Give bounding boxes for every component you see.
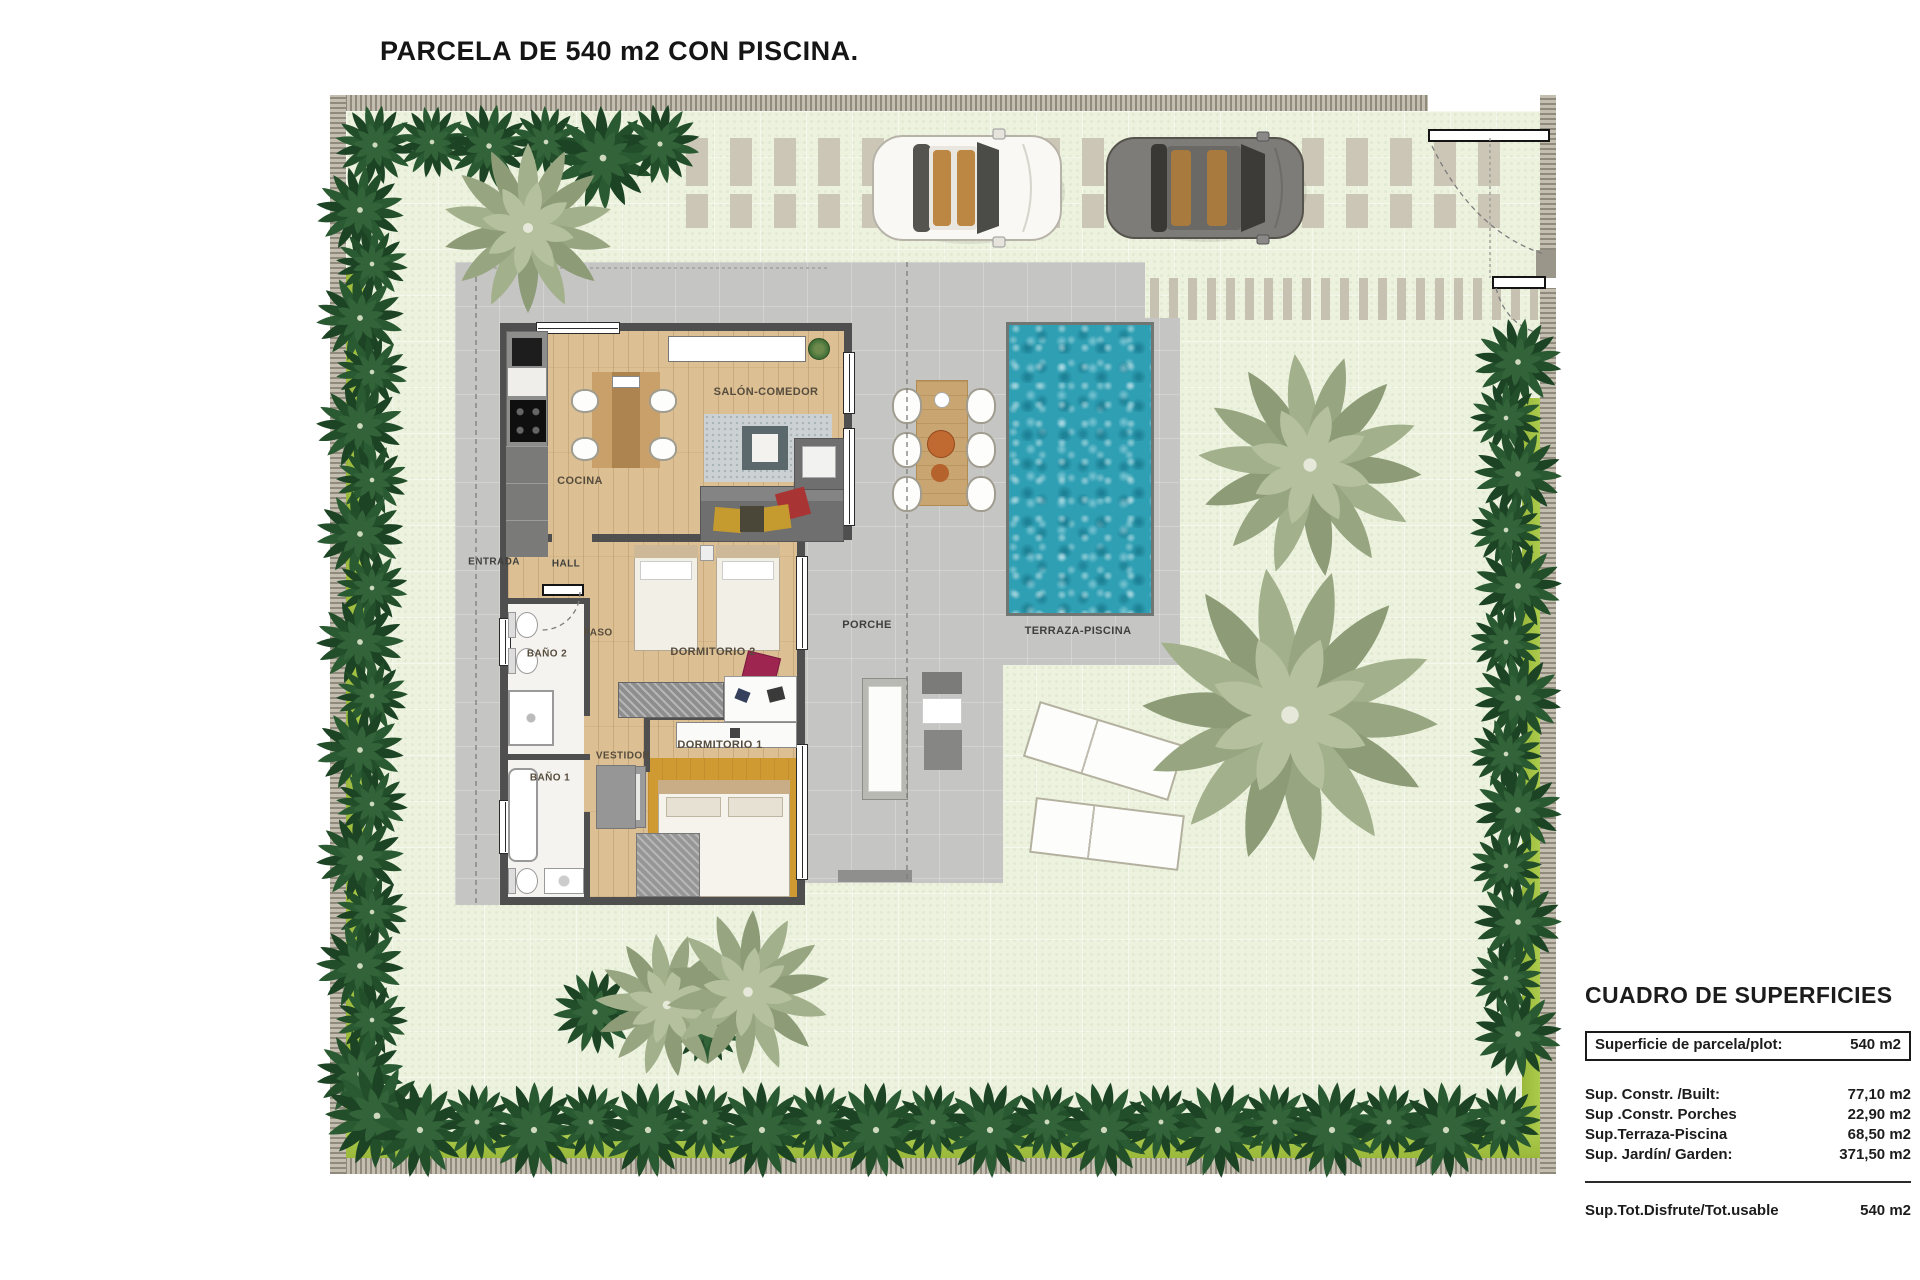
pedestrian-gate bbox=[1492, 276, 1546, 289]
window bbox=[536, 322, 620, 334]
surface-table-row: Sup .Constr. Porches 22,90 m2 bbox=[1585, 1105, 1911, 1125]
dining-chair bbox=[649, 437, 677, 461]
surface-table-row: Sup.Terraza-Piscina 68,50 m2 bbox=[1585, 1125, 1911, 1145]
plot-row-value: 540 m2 bbox=[1850, 1035, 1901, 1055]
interior-wall bbox=[584, 812, 590, 897]
toilet bbox=[508, 612, 516, 638]
row-label: Sup.Terraza-Piscina bbox=[1585, 1125, 1727, 1145]
perimeter-wall-left bbox=[330, 95, 346, 1174]
driveway-paving-row2 bbox=[686, 194, 1506, 228]
lounge-chair-cushion bbox=[752, 434, 778, 462]
toilet bbox=[508, 868, 516, 894]
bed-headboard bbox=[634, 545, 698, 558]
outdoor-chair bbox=[892, 432, 922, 468]
interior-wall bbox=[584, 604, 590, 716]
sofa-pillow-yellow bbox=[713, 507, 743, 533]
surface-table-row: Sup. Constr. /Built: 77,10 m2 bbox=[1585, 1085, 1911, 1105]
porch-side-table bbox=[922, 672, 962, 694]
bed-pillow bbox=[666, 797, 721, 817]
wardrobe-open-shelf bbox=[724, 676, 797, 722]
dining-chair bbox=[571, 389, 599, 413]
bed-pillow bbox=[640, 561, 692, 580]
row-label: Sup. Constr. /Built: bbox=[1585, 1085, 1720, 1105]
washbasin bbox=[544, 868, 584, 894]
porch-lounger-cushion bbox=[868, 686, 902, 792]
closet bbox=[596, 765, 636, 829]
bed-headboard bbox=[658, 780, 790, 794]
porch-step bbox=[838, 870, 912, 882]
tv-console bbox=[668, 336, 806, 362]
total-row-label: Sup.Tot.Disfrute/Tot.usable bbox=[1585, 1201, 1779, 1221]
page-title: PARCELA DE 540 m2 CON PISCINA. bbox=[380, 36, 859, 67]
kitchen-stove bbox=[510, 400, 546, 442]
dining-chair bbox=[649, 389, 677, 413]
outdoor-chair bbox=[966, 388, 996, 424]
bed-headboard bbox=[716, 545, 780, 558]
surface-table-divider bbox=[1585, 1181, 1911, 1183]
kitchen-cabinets bbox=[506, 446, 548, 557]
room-label-paso: PASO bbox=[583, 628, 612, 639]
surface-table-heading: CUADRO DE SUPERFICIES bbox=[1585, 982, 1911, 1009]
surface-table-row: Sup. Jardín/ Garden: 371,50 m2 bbox=[1585, 1145, 1911, 1165]
room-label-bano1: BAÑO 1 bbox=[530, 773, 570, 784]
window bbox=[796, 744, 808, 880]
gate-pillar bbox=[1536, 250, 1556, 278]
room-label-entrada: ENTRADA bbox=[468, 557, 520, 568]
interior-wall bbox=[508, 598, 590, 604]
hedge-right bbox=[1522, 398, 1540, 1158]
sofa-pillow-white bbox=[802, 446, 836, 478]
shower bbox=[508, 690, 554, 746]
entrance-door bbox=[542, 584, 584, 596]
kitchen-sink bbox=[512, 338, 542, 366]
room-label-vestidor: VESTIDOR bbox=[596, 751, 650, 762]
bed-pillow bbox=[722, 561, 774, 580]
surface-table-total-row: Sup.Tot.Disfrute/Tot.usable 540 m2 bbox=[1585, 1201, 1911, 1221]
hedge-left bbox=[346, 268, 364, 1158]
toilet-bowl bbox=[516, 868, 538, 894]
surface-table: CUADRO DE SUPERFICIES Superficie de parc… bbox=[1585, 982, 1911, 1221]
row-value: 371,50 m2 bbox=[1839, 1145, 1911, 1165]
house-wall-bottom bbox=[500, 897, 805, 905]
perimeter-wall-top bbox=[330, 95, 1428, 111]
window bbox=[796, 556, 808, 650]
room-label-terraza: TERRAZA-PISCINA bbox=[1025, 625, 1132, 637]
row-label: Sup. Jardín/ Garden: bbox=[1585, 1145, 1733, 1165]
room-label-dormitorio1: DORMITORIO 1 bbox=[677, 739, 762, 751]
room-label-dormitorio2: DORMITORIO 2 bbox=[670, 646, 755, 658]
perimeter-wall-right-lower bbox=[1540, 288, 1556, 1174]
outdoor-chair bbox=[892, 388, 922, 424]
perimeter-wall-bottom bbox=[330, 1158, 1556, 1174]
bidet bbox=[508, 648, 516, 674]
swimming-pool bbox=[1006, 322, 1154, 616]
room-label-hall: HALL bbox=[552, 559, 580, 570]
row-value: 22,90 m2 bbox=[1848, 1105, 1911, 1125]
row-label: Sup .Constr. Porches bbox=[1585, 1105, 1737, 1125]
hedge-bottom bbox=[346, 1132, 1540, 1158]
room-label-bano2: BAÑO 2 bbox=[527, 649, 567, 660]
room-label-porche: PORCHE bbox=[842, 619, 891, 631]
plant-icon bbox=[808, 338, 830, 360]
row-value: 68,50 m2 bbox=[1848, 1125, 1911, 1145]
interior-wall bbox=[644, 720, 650, 772]
driveway-gate bbox=[1428, 129, 1550, 142]
sofa-throw bbox=[740, 506, 764, 532]
table-bowl-orange-small bbox=[931, 464, 949, 482]
outdoor-chair bbox=[966, 476, 996, 512]
window bbox=[843, 352, 855, 414]
driveway-paving-row1 bbox=[686, 138, 1506, 186]
porch-ottoman bbox=[924, 730, 962, 770]
outdoor-chair bbox=[966, 432, 996, 468]
surface-table-plot-row: Superficie de parcela/plot: 540 m2 bbox=[1585, 1031, 1911, 1061]
perimeter-wall-right-upper bbox=[1540, 95, 1556, 250]
sofa-pillow-yellow bbox=[760, 504, 791, 532]
outdoor-chair bbox=[892, 476, 922, 512]
row-value: 77,10 m2 bbox=[1848, 1085, 1911, 1105]
toilet-bowl bbox=[516, 612, 538, 638]
wardrobe bbox=[618, 682, 724, 718]
closet bbox=[636, 833, 700, 897]
nightstand bbox=[700, 545, 714, 561]
interior-wall bbox=[508, 754, 590, 760]
porch-side-table-white bbox=[922, 698, 962, 724]
kitchen-worktop bbox=[508, 368, 546, 396]
dining-chair bbox=[571, 437, 599, 461]
walkway-paving bbox=[1150, 278, 1538, 320]
window bbox=[843, 428, 855, 526]
room-label-cocina: COCINA bbox=[557, 475, 603, 487]
bed-pillow bbox=[728, 797, 783, 817]
plot-row-label: Superficie de parcela/plot: bbox=[1595, 1035, 1783, 1055]
total-row-value: 540 m2 bbox=[1860, 1201, 1911, 1221]
table-plate bbox=[934, 392, 950, 408]
table-bowl-orange bbox=[927, 430, 955, 458]
table-centerpiece bbox=[612, 376, 640, 388]
room-label-salon: SALÓN-COMEDOR bbox=[714, 386, 819, 398]
dresser-item bbox=[730, 728, 740, 738]
